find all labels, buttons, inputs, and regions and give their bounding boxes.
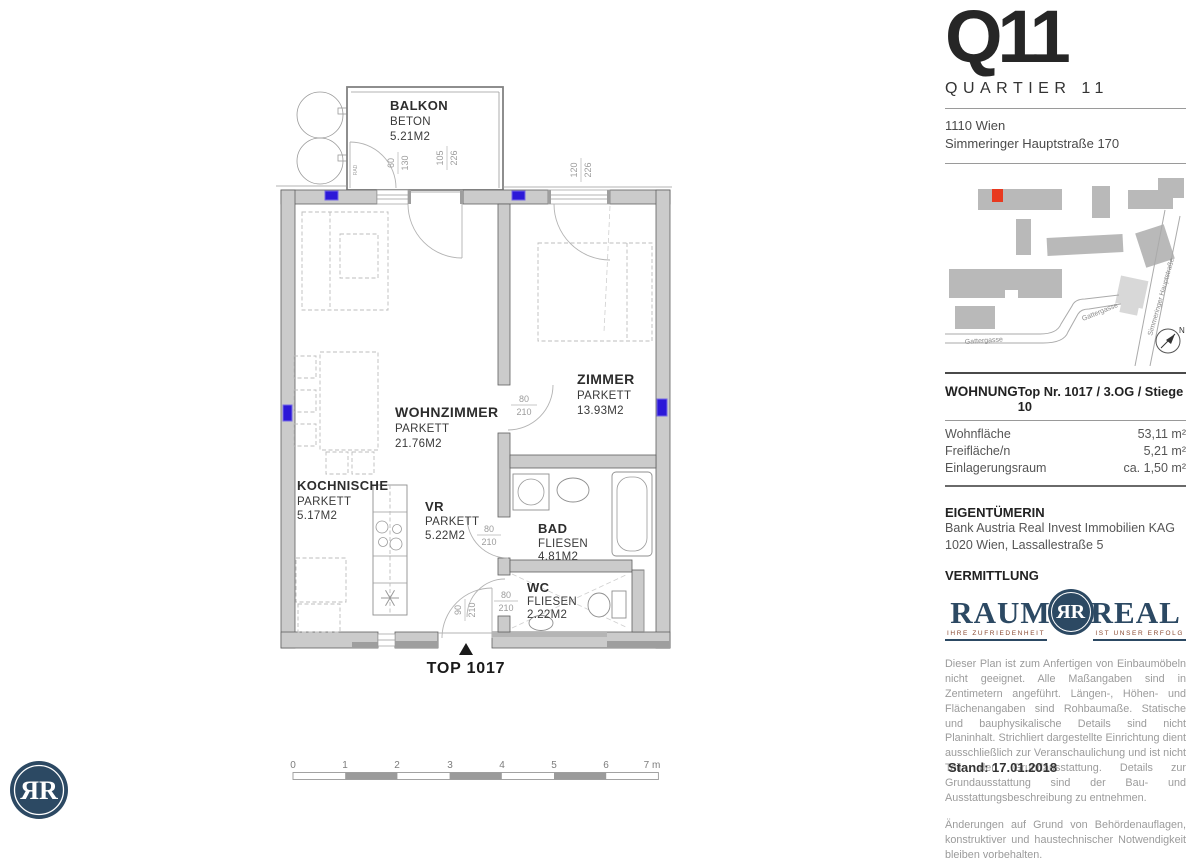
site-map: Gattergasse Gattergasse Simmeringer Haup…	[945, 168, 1186, 366]
unit-number-label: Top Nr. 1017 / 3.OG / Stiege 10	[1018, 384, 1186, 414]
svg-text:3: 3	[447, 760, 453, 771]
svg-text:5.22M2: 5.22M2	[425, 530, 465, 542]
svg-text:Gattergasse: Gattergasse	[965, 336, 1004, 346]
svg-text:WOHNZIMMER: WOHNZIMMER	[395, 404, 499, 420]
svg-text:Simmeringer Hauptstraße: Simmeringer Hauptstraße	[1147, 257, 1176, 336]
dim-bad-door: 80 210	[477, 524, 501, 547]
raumreal-word-right: REAL	[1091, 597, 1181, 628]
svg-text:PARKETT: PARKETT	[577, 390, 631, 402]
unit-section-label: WOHNUNG	[945, 384, 1018, 399]
divider	[945, 163, 1186, 164]
svg-text:PARKETT: PARKETT	[395, 423, 449, 435]
room-label-bad: BAD FLIESEN 4.81M2	[538, 521, 588, 563]
svg-text:N: N	[1179, 326, 1185, 335]
owner-address: 1020 Wien, Lassallestraße 5	[945, 537, 1186, 554]
svg-text:2.22M2: 2.22M2	[527, 609, 567, 621]
svg-text:210: 210	[498, 603, 513, 613]
svg-text:210: 210	[481, 537, 496, 547]
room-label-wc: WC FLIESEN 2.22M2	[527, 580, 577, 621]
disclaimer-paragraph: Dieser Plan ist zum Anfertigen von Einba…	[945, 657, 1186, 806]
project-address: 1110 Wien Simmeringer Hauptstraße 170	[945, 117, 1186, 153]
unit-location-marker	[992, 189, 1003, 202]
svg-text:FLIESEN: FLIESEN	[538, 538, 588, 550]
svg-text:105: 105	[435, 150, 445, 165]
svg-text:WC: WC	[527, 580, 550, 595]
info-panel: Q11 QUARTIER 11 1110 Wien Simmeringer Ha…	[945, 0, 1186, 824]
site-map-light-building	[1114, 275, 1149, 316]
svg-text:FLIESEN: FLIESEN	[527, 596, 577, 608]
svg-text:210: 210	[467, 602, 477, 617]
entrance-marker-icon	[459, 643, 473, 655]
raumreal-logo: RAUM ЯR REAL	[945, 589, 1186, 635]
svg-text:80: 80	[501, 590, 511, 600]
tagline-left: IHRE ZUFRIEDENHEIT	[945, 630, 1047, 641]
disclaimer-paragraph: Änderungen auf Grund von Behördenauflage…	[945, 818, 1186, 863]
project-logo: Q11	[945, 0, 1186, 76]
info-row: Freifläche/n 5,21 m²	[945, 443, 1186, 460]
dim-zimmer-door: 80 210	[511, 394, 537, 417]
svg-text:120: 120	[569, 162, 579, 177]
svg-text:210: 210	[516, 407, 531, 417]
svg-text:130: 130	[400, 155, 410, 170]
unit-info-rows: Wohnfläche 53,11 m² Freifläche/n 5,21 m²…	[945, 426, 1186, 477]
broker-section-label: VERMITTLUNG	[945, 568, 1186, 583]
svg-text:5.21M2: 5.21M2	[390, 131, 430, 143]
svg-text:VR: VR	[425, 499, 444, 514]
dim-wc-door: 80 210	[494, 590, 518, 613]
svg-text:2: 2	[394, 760, 400, 771]
unit-info-header: WOHNUNG Top Nr. 1017 / 3.OG / Stiege 10	[945, 374, 1186, 421]
dim-zimmer-window: 120 226	[569, 158, 593, 182]
address-line2: Simmeringer Hauptstraße 170	[945, 135, 1186, 153]
project-subtitle: QUARTIER 11	[945, 80, 1186, 98]
svg-text:1: 1	[342, 760, 348, 771]
svg-text:5.17M2: 5.17M2	[297, 510, 337, 522]
svg-text:PARKETT: PARKETT	[297, 496, 351, 508]
plan-date: Stand: 17.01.2018	[948, 760, 1057, 775]
compass-icon: N	[1156, 326, 1185, 353]
svg-text:6: 6	[603, 760, 609, 771]
raumreal-word-left: RAUM	[950, 597, 1050, 628]
svg-text:RAD: RAD	[353, 164, 359, 175]
svg-text:4: 4	[499, 760, 505, 771]
room-label-wohnzimmer: WOHNZIMMER PARKETT 21.76M2	[395, 404, 499, 450]
unit-marker-label: TOP 1017	[427, 660, 506, 677]
svg-text:BALKON: BALKON	[390, 98, 448, 113]
raumreal-emblem-icon: ЯR	[1048, 589, 1094, 635]
svg-text:80: 80	[484, 524, 494, 534]
svg-text:13.93M2: 13.93M2	[577, 405, 624, 417]
divider	[945, 108, 1186, 109]
owner-block: EIGENTÜMERIN Bank Austria Real Invest Im…	[945, 505, 1186, 554]
raumreal-corner-emblem: ЯR	[10, 761, 68, 819]
info-row: Einlagerungsraum ca. 1,50 m²	[945, 460, 1186, 477]
info-row: Wohnfläche 53,11 m²	[945, 426, 1186, 443]
svg-text:5: 5	[551, 760, 557, 771]
svg-text:BETON: BETON	[390, 116, 431, 128]
svg-text:60: 60	[386, 158, 396, 168]
floor-plan: RAD	[0, 0, 945, 824]
room-label-zimmer: ZIMMER PARKETT 13.93M2	[577, 371, 635, 417]
svg-text:90: 90	[453, 605, 463, 615]
svg-text:BAD: BAD	[538, 521, 567, 536]
divider	[945, 485, 1186, 487]
svg-text:PARKETT: PARKETT	[425, 516, 479, 528]
kitchen-unit	[373, 485, 407, 615]
svg-text:KOCHNISCHE: KOCHNISCHE	[297, 478, 388, 493]
svg-text:7 m: 7 m	[644, 760, 661, 771]
tagline-right: IST UNSER ERFOLG	[1093, 630, 1186, 641]
balcony-wall-label: RAD	[353, 164, 359, 175]
owner-section-label: EIGENTÜMERIN	[945, 505, 1186, 520]
svg-text:4.81M2: 4.81M2	[538, 551, 578, 563]
svg-text:ZIMMER: ZIMMER	[577, 371, 635, 387]
address-line1: 1110 Wien	[945, 117, 1186, 135]
svg-text:0: 0	[290, 760, 296, 771]
svg-text:80: 80	[519, 394, 529, 404]
scale-bar: 0 1 2 3 4 5 6 7 m	[290, 760, 660, 780]
svg-text:226: 226	[583, 162, 593, 177]
svg-text:21.76M2: 21.76M2	[395, 438, 442, 450]
owner-name: Bank Austria Real Invest Immobilien KAG	[945, 520, 1186, 537]
svg-text:ЯR: ЯR	[20, 776, 58, 805]
svg-text:226: 226	[449, 150, 459, 165]
svg-text:Gattergasse: Gattergasse	[1081, 302, 1119, 323]
broker-block: VERMITTLUNG RAUM ЯR REAL IHRE ZUFRIEDENH…	[945, 568, 1186, 641]
